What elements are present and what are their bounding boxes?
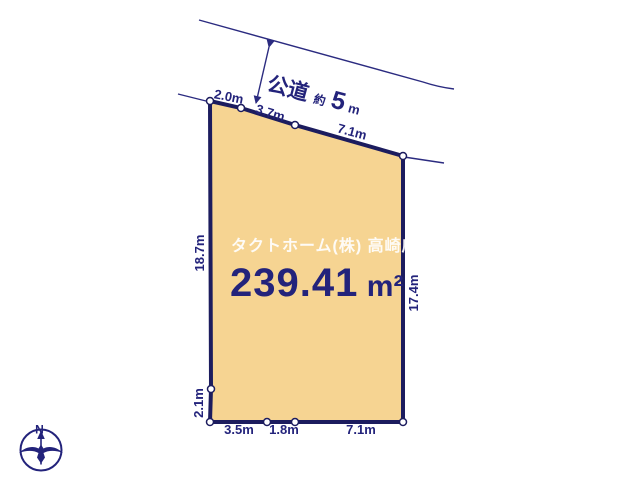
vertex-marker [400, 153, 407, 160]
vertex-marker [292, 419, 299, 426]
vertex-marker [400, 419, 407, 426]
vertex-marker [208, 386, 215, 393]
road-width-unit: m [347, 100, 362, 117]
vertex-marker [207, 98, 214, 105]
road-lower-edge-left-line [178, 94, 210, 102]
vertex-marker [264, 419, 271, 426]
land-plot-diagram: タクトホーム(株) 高崎店 239.41 m² 公道 約 5 m 2.0m 3.… [0, 0, 640, 480]
dim-left-lower: 2.1m [191, 388, 206, 418]
watermark-text: タクトホーム(株) 高崎店 [231, 236, 419, 255]
road-width-value: 5 [328, 86, 349, 117]
area-unit: m² [367, 270, 404, 303]
north-compass: N [19, 423, 63, 471]
vertex-marker [207, 419, 214, 426]
dim-bottom-segment-3: 7.1m [346, 422, 376, 437]
road-name: 公道 [265, 72, 312, 106]
road-lower-edge-right-line [404, 157, 444, 163]
road-approx: 約 [312, 91, 327, 109]
site-plan-svg: タクトホーム(株) 高崎店 239.41 m² 公道 約 5 m 2.0m 3.… [0, 0, 640, 480]
dim-bottom-segment-1: 3.5m [224, 422, 254, 437]
vertex-marker [292, 122, 299, 129]
road-upper-edge-line [199, 20, 454, 89]
area-value: 239.41 [230, 261, 358, 305]
dim-left-upper: 18.7m [192, 235, 207, 272]
compass-wings-icon [19, 445, 63, 464]
dim-right: 17.4m [406, 275, 421, 312]
vertex-marker [238, 105, 245, 112]
